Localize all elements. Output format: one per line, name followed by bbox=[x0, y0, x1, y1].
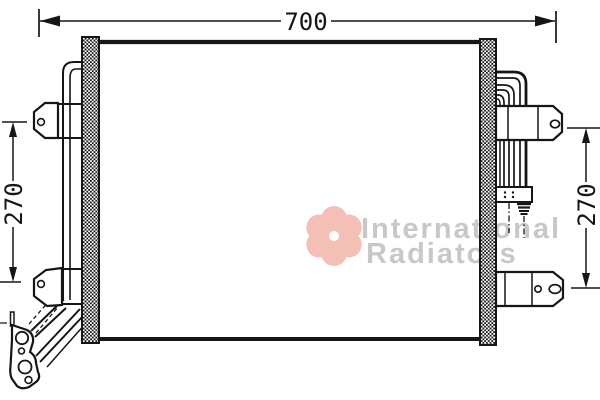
arrowhead-left bbox=[40, 16, 60, 27]
lower-right-mounting-bracket bbox=[496, 272, 563, 306]
bottom-left-connector-plate bbox=[0, 312, 39, 388]
bracket-hole bbox=[38, 281, 45, 288]
top-dimension-label: 700 bbox=[284, 8, 327, 36]
right-dimension-label: 270 bbox=[573, 183, 600, 226]
arrowhead-right bbox=[535, 16, 555, 27]
bracket-slot bbox=[549, 285, 561, 294]
condenser-drawing-page: International Radiators bbox=[0, 0, 600, 400]
bolt-hole bbox=[19, 348, 25, 354]
left-inlet-pipe bbox=[63, 62, 82, 300]
upper-left-bracket-plate bbox=[58, 104, 84, 138]
watermark: International Radiators bbox=[306, 206, 561, 270]
right-dimension: 270 bbox=[567, 128, 600, 288]
port-hole bbox=[16, 332, 28, 344]
condenser-core-face bbox=[99, 40, 481, 340]
arrowhead-down bbox=[9, 267, 17, 282]
upper-right-mounting-bracket bbox=[496, 106, 562, 140]
lower-left-mounting-bracket bbox=[34, 268, 62, 306]
technical-drawing-canvas: International Radiators bbox=[0, 0, 600, 400]
lower-left-pipe-assembly bbox=[31, 301, 86, 367]
upper-left-mounting-bracket bbox=[34, 103, 58, 138]
left-side-rail bbox=[82, 37, 99, 343]
left-dimension-label: 270 bbox=[0, 182, 28, 225]
top-dimension: 700 bbox=[39, 8, 556, 43]
left-dimension: 270 bbox=[0, 122, 28, 282]
bolt-hole bbox=[25, 377, 32, 384]
bracket-hole bbox=[551, 120, 560, 128]
right-side-rail bbox=[480, 39, 496, 345]
arrowhead-down bbox=[582, 273, 590, 288]
lower-left-pipe-block bbox=[62, 269, 84, 304]
bracket-hole bbox=[38, 119, 45, 126]
port-hole bbox=[19, 361, 32, 374]
bolt-hole bbox=[535, 286, 541, 292]
receiver-drier bbox=[496, 187, 532, 202]
